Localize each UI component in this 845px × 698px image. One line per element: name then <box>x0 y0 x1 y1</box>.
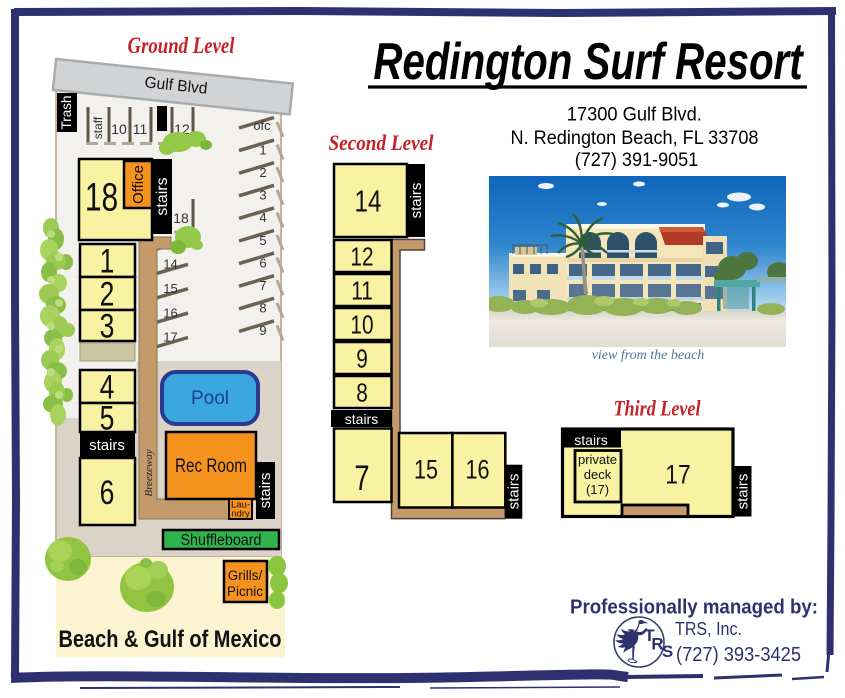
svg-text:Shuffleboard: Shuffleboard <box>181 532 262 549</box>
svg-text:ndry: ndry <box>231 509 250 520</box>
svg-text:6: 6 <box>259 255 266 270</box>
svg-text:ofc: ofc <box>253 118 271 133</box>
svg-text:Grills/: Grills/ <box>228 568 263 583</box>
svg-text:stairs: stairs <box>574 432 607 448</box>
svg-text:14: 14 <box>163 257 177 272</box>
svg-text:6: 6 <box>100 474 115 512</box>
svg-text:2: 2 <box>259 165 266 180</box>
svg-text:17: 17 <box>665 460 691 490</box>
svg-text:Third Level: Third Level <box>614 396 702 421</box>
svg-text:5: 5 <box>100 399 115 437</box>
svg-text:15: 15 <box>414 455 438 485</box>
svg-text:(727) 393-3425: (727) 393-3425 <box>676 643 801 666</box>
svg-text:18: 18 <box>85 175 118 219</box>
svg-text:7: 7 <box>259 278 266 293</box>
svg-text:17300 Gulf Blvd.: 17300 Gulf Blvd. <box>567 105 702 126</box>
svg-text:Beach & Gulf of Mexico: Beach & Gulf of Mexico <box>59 626 282 653</box>
svg-text:Breezeway: Breezeway <box>143 449 155 496</box>
svg-text:18: 18 <box>173 210 189 226</box>
svg-text:staff: staff <box>91 116 105 139</box>
svg-text:S: S <box>662 642 673 661</box>
svg-text:12: 12 <box>350 242 373 271</box>
svg-text:N. Redington Beach, FL 33708: N. Redington Beach, FL 33708 <box>511 128 759 149</box>
svg-text:7: 7 <box>354 459 369 498</box>
svg-text:11: 11 <box>133 121 148 137</box>
svg-text:9: 9 <box>356 344 368 373</box>
svg-text:14: 14 <box>355 184 382 219</box>
svg-text:3: 3 <box>100 307 115 345</box>
svg-text:Professionally managed by:: Professionally managed by: <box>570 597 818 619</box>
svg-text:8: 8 <box>259 301 266 316</box>
svg-text:stairs: stairs <box>89 437 125 454</box>
svg-text:3: 3 <box>259 188 266 203</box>
svg-text:private: private <box>578 452 617 467</box>
svg-text:view from the beach: view from the beach <box>592 348 705 363</box>
svg-text:deck: deck <box>584 467 612 482</box>
svg-text:(727) 391-9051: (727) 391-9051 <box>575 150 699 171</box>
svg-text:Pool: Pool <box>191 388 229 409</box>
svg-text:stairs: stairs <box>408 183 425 219</box>
svg-text:5: 5 <box>259 233 266 248</box>
svg-text:(17): (17) <box>586 482 609 497</box>
svg-text:11: 11 <box>351 276 373 305</box>
svg-text:17: 17 <box>163 330 177 345</box>
svg-text:15: 15 <box>163 281 177 296</box>
svg-text:stairs: stairs <box>735 474 752 510</box>
svg-text:1: 1 <box>259 142 266 157</box>
svg-text:8: 8 <box>356 378 368 407</box>
svg-text:Redington Surf Resort: Redington Surf Resort <box>373 32 804 90</box>
svg-text:10: 10 <box>111 121 127 137</box>
svg-text:Ground Level: Ground Level <box>128 33 235 58</box>
svg-text:4: 4 <box>259 210 266 225</box>
svg-text:Picnic: Picnic <box>227 584 263 599</box>
svg-text:stairs: stairs <box>154 177 171 215</box>
svg-text:stairs: stairs <box>345 411 378 427</box>
svg-text:stairs: stairs <box>506 474 523 510</box>
svg-text:TRS, Inc.: TRS, Inc. <box>675 619 742 639</box>
svg-text:stairs: stairs <box>257 473 274 509</box>
svg-text:Trash: Trash <box>59 95 74 129</box>
svg-text:9: 9 <box>259 323 266 338</box>
svg-text:10: 10 <box>350 310 373 339</box>
svg-text:Rec Room: Rec Room <box>175 456 247 477</box>
svg-text:Office: Office <box>130 165 147 204</box>
svg-text:16: 16 <box>163 305 177 320</box>
svg-text:Second Level: Second Level <box>329 130 435 155</box>
svg-text:16: 16 <box>465 455 489 485</box>
